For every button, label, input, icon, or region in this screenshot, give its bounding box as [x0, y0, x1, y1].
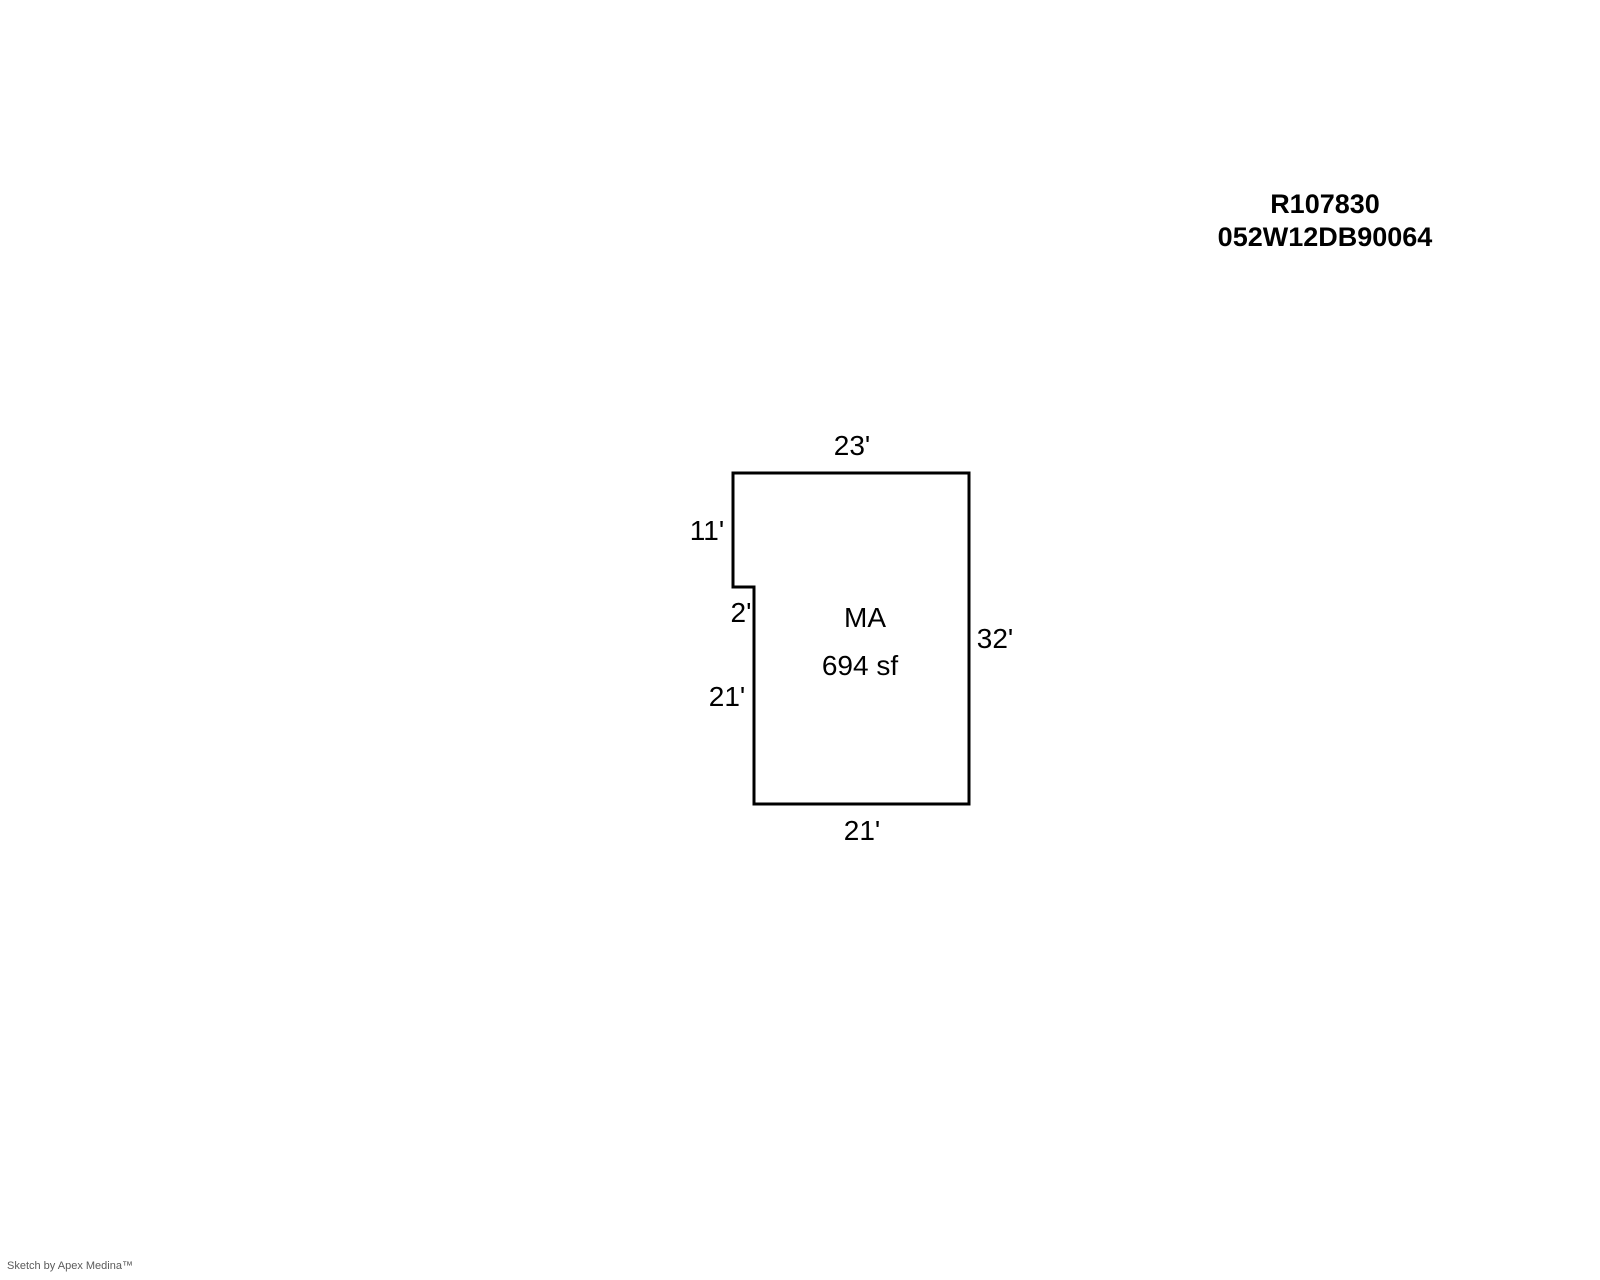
dimension-label-upper-left: 11' — [690, 517, 724, 545]
floorplan-sketch — [0, 0, 1600, 1280]
dimension-label-top: 23' — [834, 432, 871, 460]
dimension-label-bottom: 21' — [844, 817, 881, 845]
sketch-page: R107830 052W12DB90064 23' 11' 2' 21' 32'… — [0, 0, 1600, 1280]
area-size-label: 694 sf — [822, 652, 898, 680]
dimension-label-right: 32' — [977, 625, 1014, 653]
dimension-label-lower-left: 21' — [709, 683, 746, 711]
floorplan-outline — [733, 473, 969, 804]
area-code-label: MA — [844, 604, 886, 632]
dimension-label-notch: 2' — [731, 599, 752, 627]
sketch-credit: Sketch by Apex Medina™ — [7, 1259, 133, 1273]
